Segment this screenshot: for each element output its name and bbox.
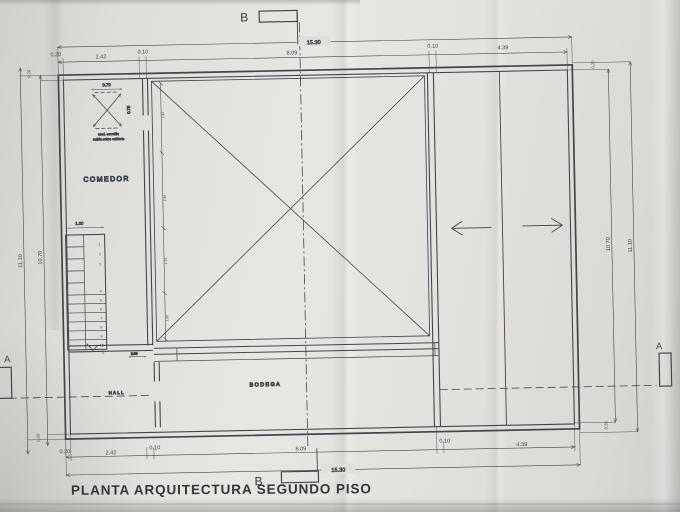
dim-label: 10.70 (606, 237, 612, 251)
staircase: 1.00 1 2 3 4 5 6 7 8 9 10 11 (65, 220, 107, 355)
right-section-divider (499, 71, 506, 425)
dim-label: 0.20 (36, 433, 41, 442)
dim-label: 8.09 (286, 50, 297, 56)
stair-step-number: 11 (101, 350, 105, 354)
section-letter: A (656, 341, 663, 352)
slide-arrow-left (451, 221, 491, 236)
dim-label: 0.75 (126, 105, 131, 114)
section-line-a (9, 385, 657, 398)
dim-label: 1.00 (75, 221, 84, 226)
stair-step-number: 5 (100, 298, 102, 302)
section-marker-a-left: A (0, 354, 12, 398)
dim-label: 0.20 (590, 60, 595, 69)
section-letter: A (4, 354, 11, 365)
dim-label: 0.10 (427, 44, 438, 50)
stair-step-number: 7 (100, 316, 102, 320)
outer-walls (58, 65, 579, 439)
stair-step-number: 1 (99, 242, 101, 246)
partition-wall-center (427, 73, 440, 427)
room-label-hall: HALL (109, 390, 125, 395)
stair-step-number: 4 (100, 289, 102, 293)
stair-step-number: 2 (99, 252, 101, 256)
roof-hatch-symbol: 0.70 0.75 med. escotilla salida sobre cu… (91, 82, 131, 142)
dim-label-total: 15.30 (307, 40, 321, 46)
section-line-b (299, 22, 308, 446)
dim-label: 0.60 (131, 352, 138, 356)
bottom-dimension-lines: 0.20 2.42 0.10 8.09 0.10 4.39 15.30 (59, 424, 580, 479)
dim-label: 11.10 (18, 254, 24, 268)
photographed-blueprint: { "title": "PLANTA ARQUITECTURA SEGUNDO … (0, 0, 680, 512)
dim-label: 1.90 (161, 112, 165, 119)
section-marker-a-right: A (656, 341, 672, 386)
dim-label: 10.70 (38, 251, 44, 265)
slide-arrow-right (522, 218, 562, 233)
stair-step-number: 9 (101, 334, 103, 338)
dim-label: 8.09 (295, 446, 306, 452)
section-letter: B (240, 10, 248, 24)
floorplan-drawing: 0.60 0.70 0.75 med. escotilla salida sob… (0, 0, 680, 512)
interior-dim-chain: 1.90 1.98 1.70 1.60 (158, 81, 169, 341)
hatch-note-line1: med. escotilla (98, 132, 119, 136)
dim-label: 4.39 (497, 45, 508, 51)
bench-height-dim: 0.60 (129, 352, 146, 357)
section-marker-b-top: B (240, 9, 298, 45)
dim-label: 0.20 (26, 69, 31, 78)
dim-label: 2.42 (105, 450, 116, 456)
room-label-comedor: COMEDOR (83, 176, 129, 184)
dim-label-total: 15.30 (331, 468, 345, 474)
low-wall-bench (154, 343, 439, 362)
dim-label: 0.10 (149, 445, 160, 451)
drawing-title: PLANTA ARQUITECTURA SEGUNDO PISO (71, 481, 372, 498)
stair-step-number: 8 (100, 325, 102, 329)
dim-label: 0.20 (50, 52, 61, 58)
dim-label: 1.98 (163, 195, 167, 202)
dim-label: 2.42 (95, 54, 106, 60)
stair-step-number: 6 (100, 307, 102, 311)
dim-label: 0.20 (603, 421, 608, 430)
top-dimension-lines: 15.30 0.20 2.42 0.10 8.09 0.10 4.39 (50, 31, 572, 80)
partition-wall-hall-bodega (154, 362, 160, 427)
dim-label: 0.10 (137, 49, 148, 55)
partition-wall-comedor (63, 78, 152, 352)
dim-label: 0.20 (59, 449, 70, 455)
hatch-note-line2: salida sobre cubierta (93, 137, 124, 142)
dim-label: 0.70 (102, 82, 111, 87)
dim-label: 1.60 (165, 315, 169, 322)
double-height-void (151, 76, 429, 341)
dim-label: 1.70 (164, 258, 168, 265)
dim-label: 4.39 (516, 442, 527, 448)
stair-step-number: 3 (99, 262, 101, 266)
dim-label: 0.10 (439, 438, 450, 444)
room-label-bodega: BODEGA (250, 382, 282, 389)
stair-step-number: 10 (100, 343, 104, 347)
dim-label: 11.10 (628, 239, 634, 253)
